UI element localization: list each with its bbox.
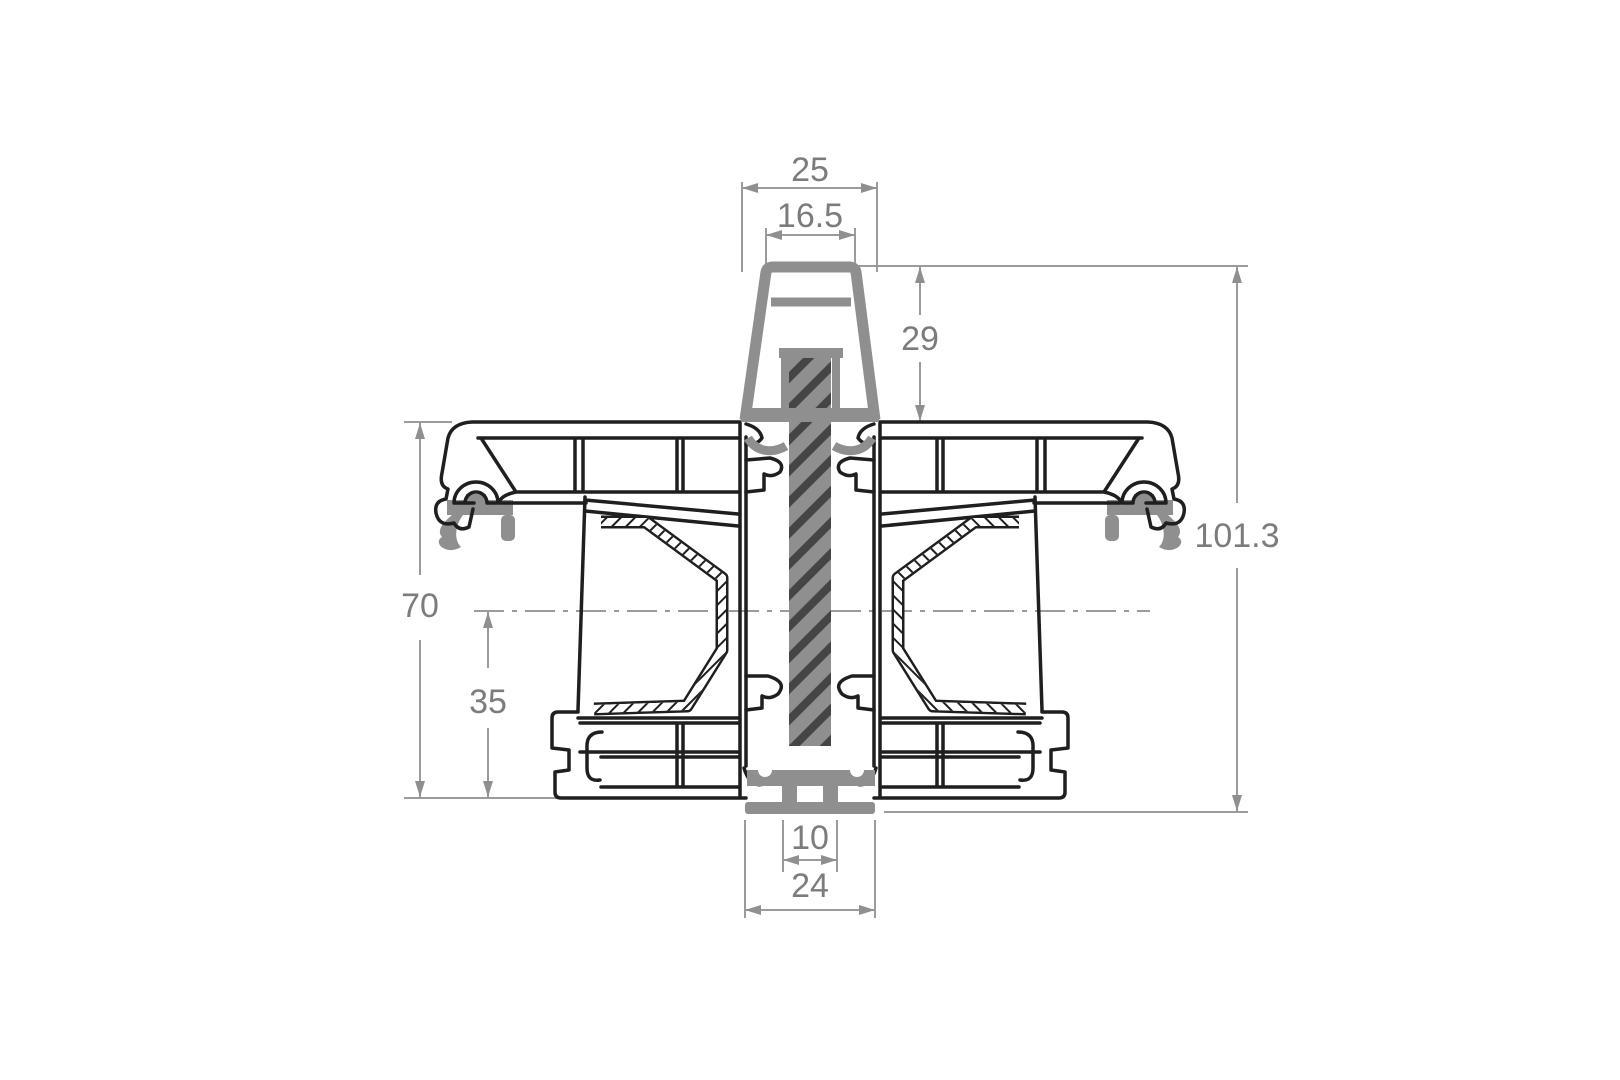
arrow-right-icon	[861, 183, 877, 193]
arrow-up-icon	[415, 423, 425, 439]
bottom-connector-flange	[745, 802, 875, 814]
dim-label-29: 29	[901, 320, 939, 358]
arrow-down-icon	[415, 781, 425, 797]
arrow-up-icon	[483, 612, 493, 628]
arrow-down-icon	[1232, 795, 1242, 811]
dim-label-10: 10	[791, 819, 829, 857]
top-gasket-flange	[741, 408, 879, 422]
profile-cross-section-drawing: 25 16.5 29 101.3 70 35 10 24	[0, 0, 1620, 1080]
dim-label-16-5: 16.5	[777, 197, 843, 235]
arrow-left-icon	[745, 905, 761, 915]
dim-label-25: 25	[791, 151, 829, 189]
arrow-right-icon	[859, 905, 875, 915]
arrow-left-icon	[742, 183, 758, 193]
dim-label-35: 35	[469, 683, 507, 721]
dim-label-24: 24	[791, 867, 829, 905]
arrow-down-icon	[483, 781, 493, 797]
arrow-up-icon	[1232, 267, 1242, 283]
dim-label-70: 70	[401, 587, 439, 625]
dim-label-101-3: 101.3	[1194, 517, 1279, 555]
profile-drawing-canvas: 25 16.5 29 101.3 70 35 10 24	[0, 0, 1620, 1080]
bottom-connector	[745, 763, 875, 814]
arrow-down-icon	[915, 405, 925, 421]
arrow-up-icon	[915, 267, 925, 283]
